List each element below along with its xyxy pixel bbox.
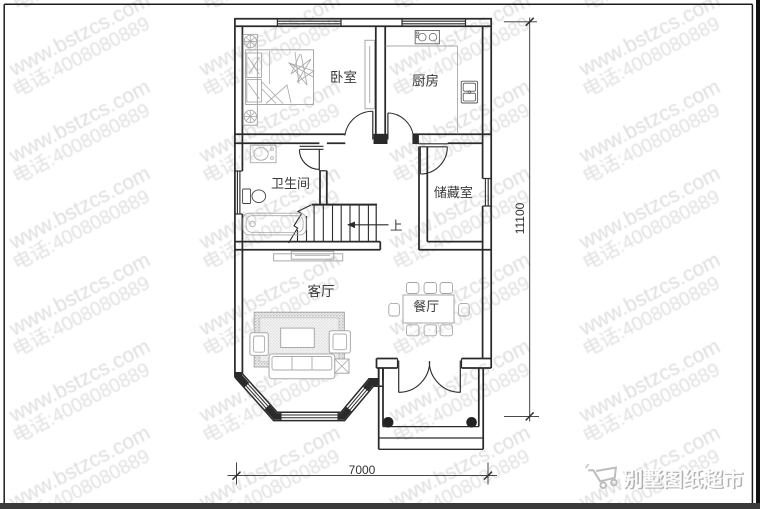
svg-text:7000: 7000 [349,463,376,477]
svg-text:厨房: 厨房 [412,73,439,88]
svg-text:上: 上 [390,219,403,233]
svg-text:餐厅: 餐厅 [413,299,439,314]
svg-text:卧室: 卧室 [330,69,357,85]
svg-text:客厅: 客厅 [308,283,335,299]
svg-text:储藏室: 储藏室 [434,185,473,200]
svg-text:卫生间: 卫生间 [271,176,310,191]
svg-text:11100: 11100 [513,202,527,234]
svg-text:别墅图纸超市: 别墅图纸超市 [622,467,743,491]
